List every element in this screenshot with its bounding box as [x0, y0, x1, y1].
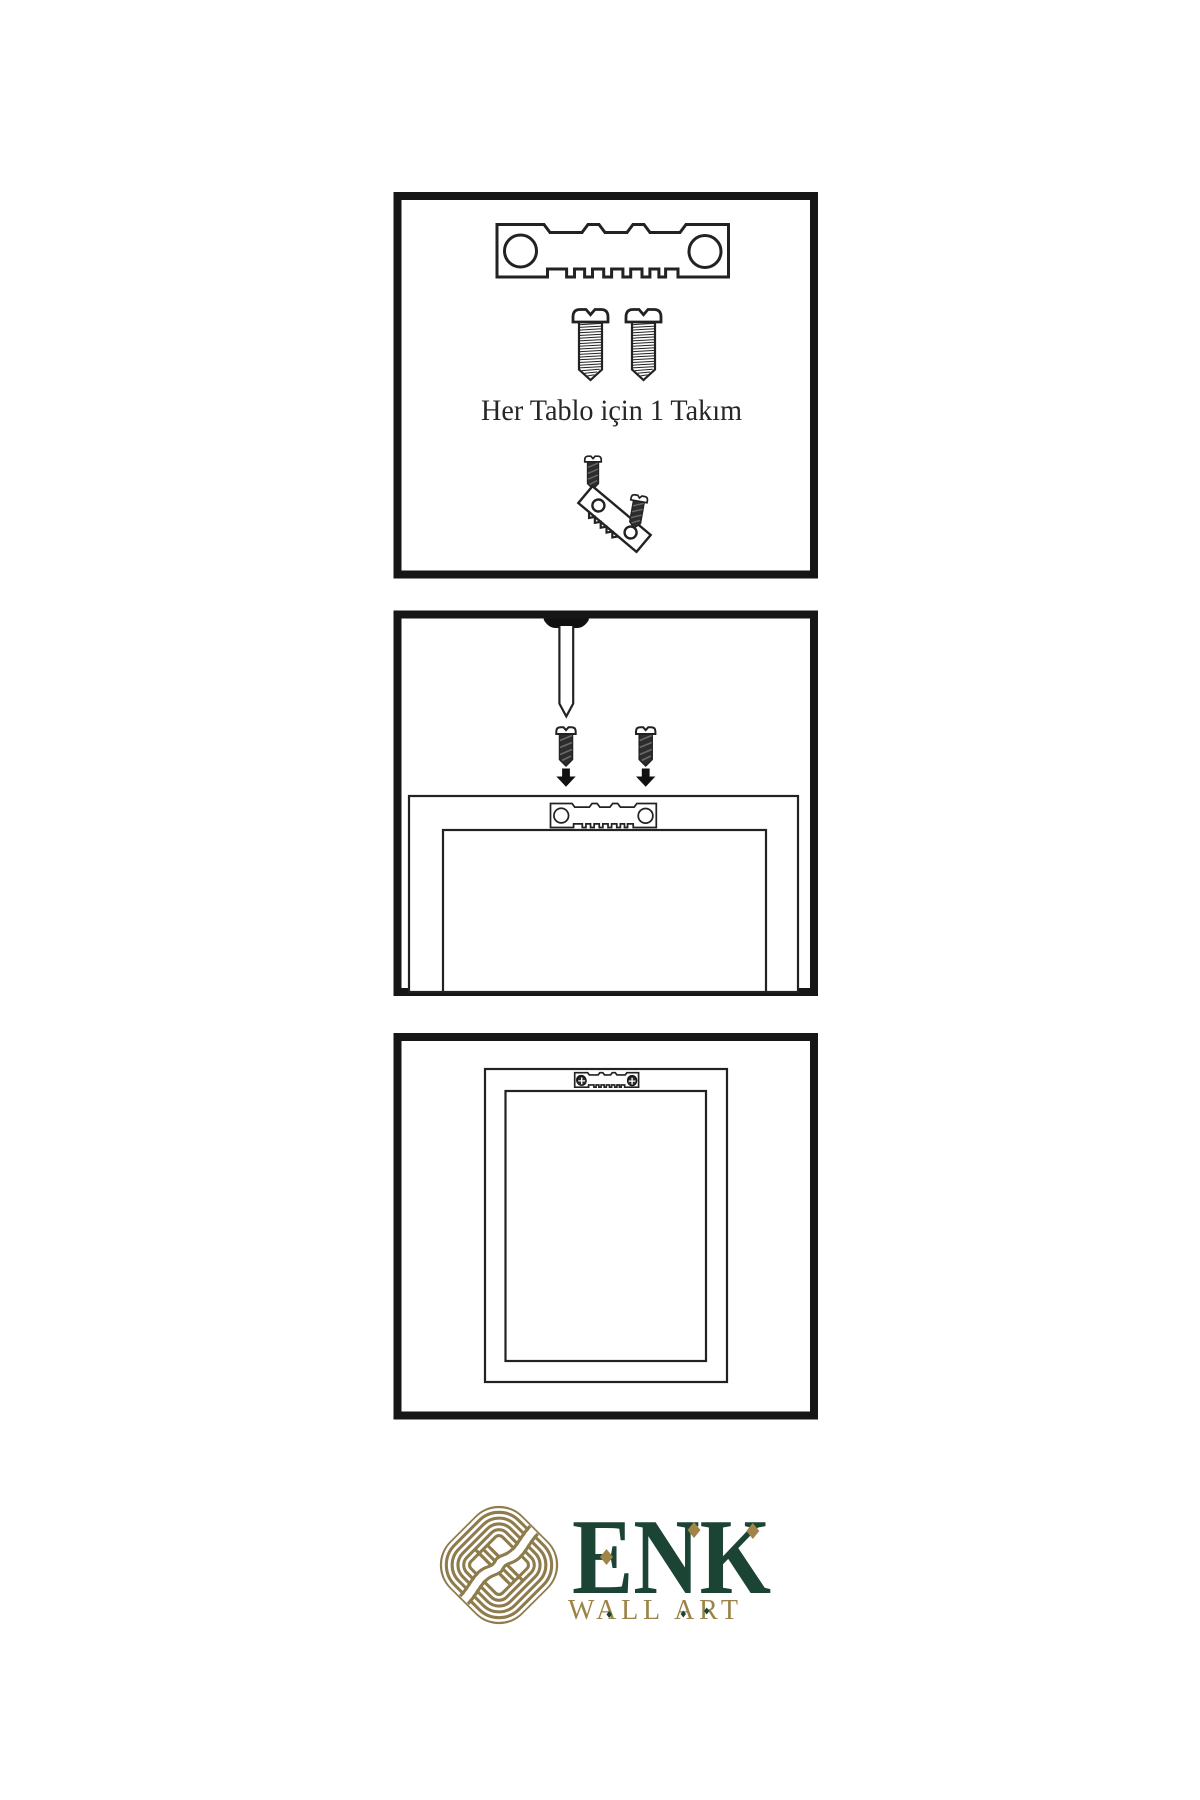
svg-text:Her Tablo için 1 Takım: Her Tablo için 1 Takım [481, 394, 742, 427]
